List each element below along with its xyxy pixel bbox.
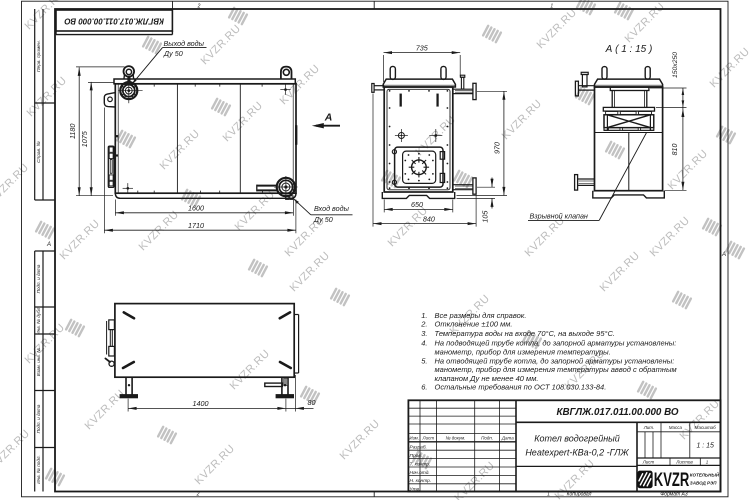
svg-text:Инв. № подл.: Инв. № подл. <box>36 455 41 484</box>
svg-text:KVZR.RU: KVZR.RU <box>23 322 68 367</box>
svg-text:735: 735 <box>416 43 429 52</box>
svg-text:Взрывной клапан: Взрывной клапан <box>530 211 588 220</box>
svg-text:KVZR.RU: KVZR.RU <box>233 189 278 234</box>
svg-text:KVZR.RU: KVZR.RU <box>228 348 273 393</box>
svg-text:KVZR.RU: KVZR.RU <box>0 162 31 207</box>
svg-text:№ докум.: № докум. <box>446 436 466 441</box>
svg-text:Н. контр.: Н. контр. <box>410 478 432 484</box>
svg-text:KVZR.RU: KVZR.RU <box>158 128 203 173</box>
svg-text:150х250: 150х250 <box>672 52 679 78</box>
svg-text:6.: 6. <box>421 382 427 391</box>
svg-text:KVZR.RU: KVZR.RU <box>193 443 238 488</box>
svg-text:Масштаб: Масштаб <box>695 425 716 430</box>
svg-text:А: А <box>46 242 51 248</box>
svg-text:KVZR.RU: KVZR.RU <box>535 7 580 52</box>
svg-text:ЗАВОД РЭП: ЗАВОД РЭП <box>690 481 717 486</box>
svg-text:Формат А3: Формат А3 <box>660 492 688 498</box>
svg-text:КОТЕЛЬНЫЙ: КОТЕЛЬНЫЙ <box>690 471 720 478</box>
svg-text:Листов: Листов <box>675 460 693 465</box>
svg-text:KVZR.RU: KVZR.RU <box>58 218 103 263</box>
svg-text:810: 810 <box>672 144 679 156</box>
svg-text:Пров.: Пров. <box>410 453 423 459</box>
svg-text:Вход воды: Вход воды <box>314 204 350 213</box>
svg-text:KVZR.RU: KVZR.RU <box>0 428 32 473</box>
svg-text:650: 650 <box>411 200 423 209</box>
svg-text:KVZR.RU: KVZR.RU <box>221 100 266 145</box>
svg-text:Подп. и дата: Подп. и дата <box>36 404 41 433</box>
svg-text:2.: 2. <box>420 320 427 329</box>
svg-text:Подп. и дата: Подп. и дата <box>36 264 41 293</box>
svg-text:Ду 50: Ду 50 <box>313 215 333 224</box>
svg-text:KVZR.RU: KVZR.RU <box>288 250 333 295</box>
svg-text:На подводящей трубе котла, до: На подводящей трубе котла, до запорной а… <box>435 338 677 347</box>
svg-text:Разраб.: Разраб. <box>410 445 427 451</box>
svg-text:Лист: Лист <box>642 460 655 465</box>
svg-text:А: А <box>721 252 726 258</box>
svg-text:3.: 3. <box>421 329 427 338</box>
svg-text:Температура воды на входе 70°С: Температура воды на входе 70°С, на выход… <box>435 329 615 338</box>
svg-text:Лит.: Лит. <box>643 425 655 430</box>
svg-text:1180: 1180 <box>68 124 77 139</box>
svg-text:1400: 1400 <box>193 399 209 408</box>
svg-text:840: 840 <box>423 214 435 223</box>
svg-text:Ду 50: Ду 50 <box>163 49 183 58</box>
svg-text:Дата: Дата <box>501 436 514 441</box>
svg-text:Остальные требования по ОСТ 10: Остальные требования по ОСТ 108.030.133-… <box>435 382 607 391</box>
svg-text:Взам. инв. №: Взам. инв. № <box>36 348 41 376</box>
svg-text:1600: 1600 <box>188 204 204 213</box>
svg-text:Т. контр.: Т. контр. <box>410 461 431 467</box>
svg-text:105: 105 <box>481 210 490 223</box>
svg-text:1: 1 <box>706 460 709 465</box>
svg-text:KVZR.RU: KVZR.RU <box>523 215 568 260</box>
svg-text:5.: 5. <box>421 357 427 366</box>
svg-text:Перв. примен.: Перв. примен. <box>36 40 42 72</box>
svg-text:Справ. №: Справ. № <box>36 141 42 163</box>
svg-text:КВГЛЖ.017.011.00.000 ВО: КВГЛЖ.017.011.00.000 ВО <box>556 407 678 418</box>
svg-text:80: 80 <box>308 398 316 407</box>
svg-text:1 : 15: 1 : 15 <box>696 443 714 450</box>
svg-text:Копировал: Копировал <box>567 492 592 498</box>
svg-text:Выход воды: Выход воды <box>164 39 205 48</box>
svg-text:KVZR.RU: KVZR.RU <box>708 46 750 91</box>
svg-text:KVZR.RU: KVZR.RU <box>137 209 182 254</box>
svg-text:Масса: Масса <box>669 425 683 430</box>
svg-text:KVZR.RU: KVZR.RU <box>25 75 70 120</box>
svg-text:1710: 1710 <box>188 221 204 230</box>
svg-text:Инв. № дубл.: Инв. № дубл. <box>36 306 41 334</box>
svg-text:1075: 1075 <box>80 130 89 147</box>
svg-text:KVZR.RU: KVZR.RU <box>678 398 723 443</box>
svg-text:Изм.: Изм. <box>409 436 419 441</box>
svg-text:Утв.: Утв. <box>410 486 421 492</box>
svg-text:манометр, прибор для измерения: манометр, прибор для измерения температу… <box>435 347 611 356</box>
svg-text:KVZR.RU: KVZR.RU <box>338 418 383 463</box>
svg-text:Подп.: Подп. <box>481 436 493 441</box>
svg-text:970: 970 <box>492 142 501 154</box>
svg-text:KVZR.RU: KVZR.RU <box>598 250 643 295</box>
svg-text:KVZR.RU: KVZR.RU <box>648 215 693 260</box>
svg-text:KVZR.RU: KVZR.RU <box>500 98 545 143</box>
svg-text:Лист: Лист <box>422 436 435 441</box>
svg-text:1: 1 <box>547 492 550 498</box>
svg-text:KVZR.RU: KVZR.RU <box>386 205 431 250</box>
svg-text:4.: 4. <box>421 338 427 347</box>
svg-text:Нач.отд.: Нач.отд. <box>410 470 430 476</box>
svg-text:KVZR.RU: KVZR.RU <box>23 0 68 32</box>
svg-text:Отклонение ±100 мм.: Отклонение ±100 мм. <box>435 320 513 329</box>
svg-text:Heatexpert-КВа-0,2 -ГЛЖ: Heatexpert-КВа-0,2 -ГЛЖ <box>525 448 629 458</box>
svg-text:А ( 1 : 15 ): А ( 1 : 15 ) <box>605 44 653 55</box>
svg-text:А: А <box>324 112 333 124</box>
svg-text:KVZR.RU: KVZR.RU <box>199 23 244 68</box>
svg-text:Котел водогрейный: Котел водогрейный <box>534 434 620 444</box>
svg-text:KVZR: KVZR <box>654 470 690 491</box>
svg-text:КВГЛЖ.017.011.00.000 ВО: КВГЛЖ.017.011.00.000 ВО <box>64 16 164 25</box>
